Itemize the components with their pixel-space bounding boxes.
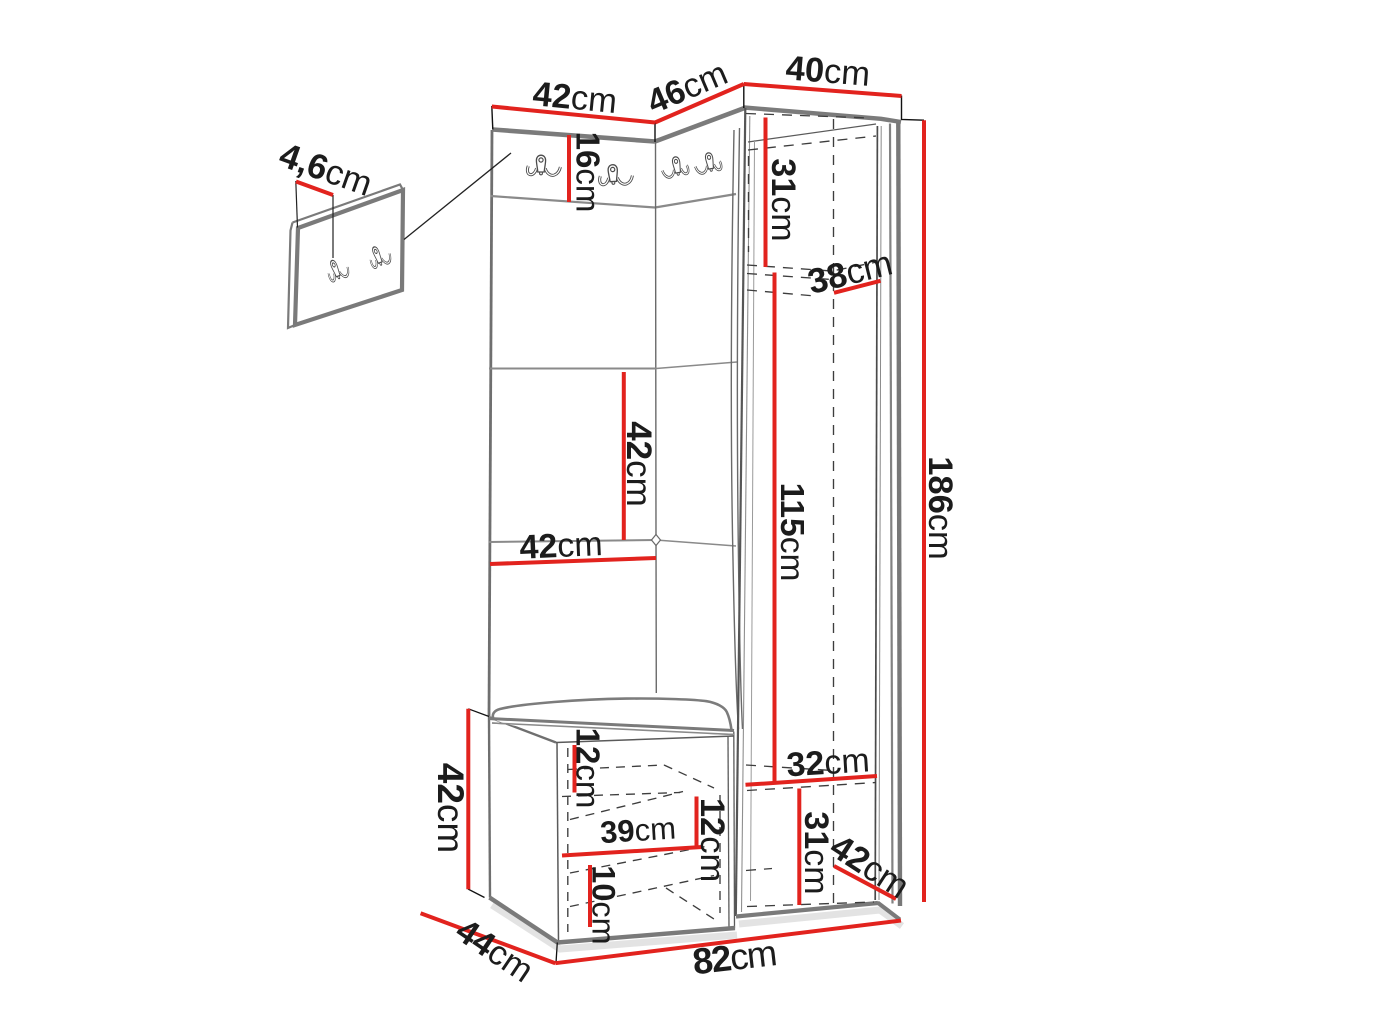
svg-text:10cm: 10cm	[586, 865, 622, 944]
svg-text:16cm: 16cm	[570, 132, 607, 213]
svg-text:39cm: 39cm	[599, 811, 677, 851]
svg-text:12cm: 12cm	[693, 798, 731, 882]
svg-text:42cm: 42cm	[619, 421, 658, 507]
svg-text:42cm: 42cm	[519, 525, 604, 567]
svg-text:32cm: 32cm	[785, 741, 870, 784]
svg-text:42cm: 42cm	[531, 75, 619, 121]
svg-text:12cm: 12cm	[570, 728, 607, 809]
svg-text:42cm: 42cm	[430, 763, 471, 853]
svg-text:31cm: 31cm	[764, 158, 802, 241]
svg-text:186cm: 186cm	[921, 456, 959, 560]
svg-text:40cm: 40cm	[784, 49, 871, 94]
svg-text:115cm: 115cm	[773, 483, 810, 582]
